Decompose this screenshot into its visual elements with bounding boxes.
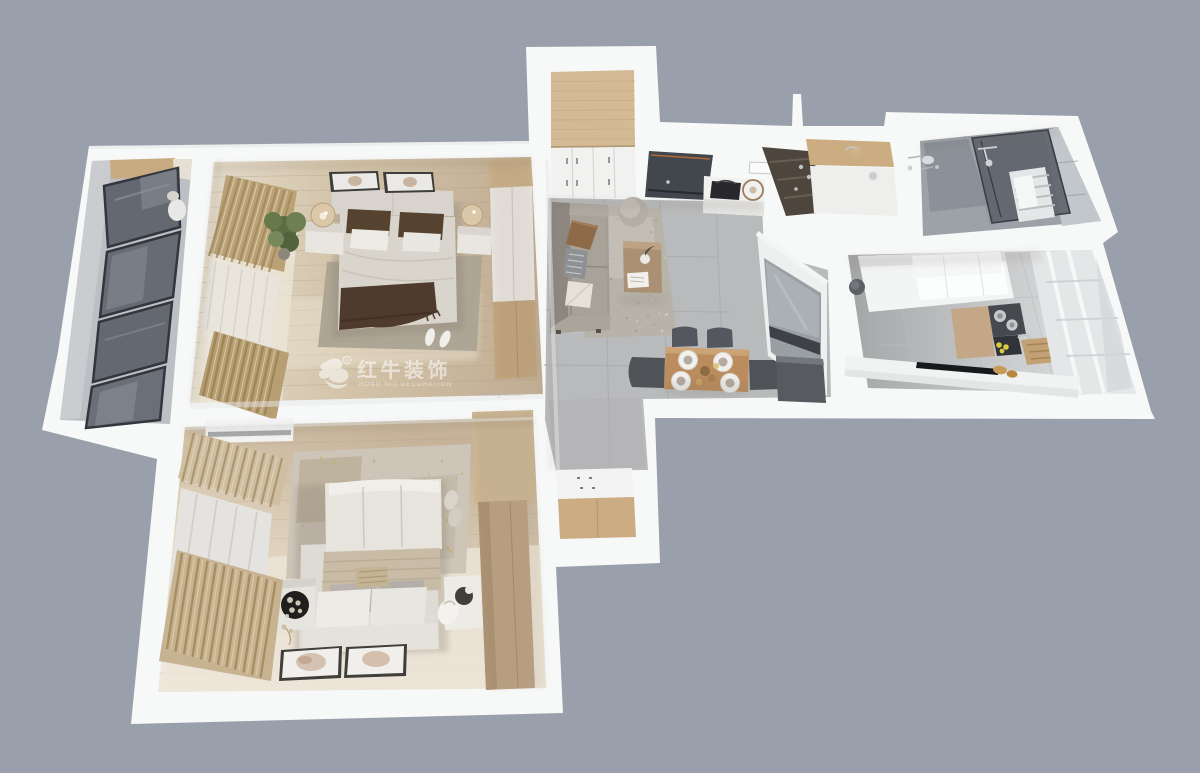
svg-text:www.hongniu.com: www.hongniu.com [472, 392, 522, 398]
svg-text:HONG NIU DECORATION: HONG NIU DECORATION [359, 382, 452, 388]
svg-text:R: R [345, 358, 349, 364]
svg-text:红牛装饰: 红牛装饰 [357, 358, 451, 382]
